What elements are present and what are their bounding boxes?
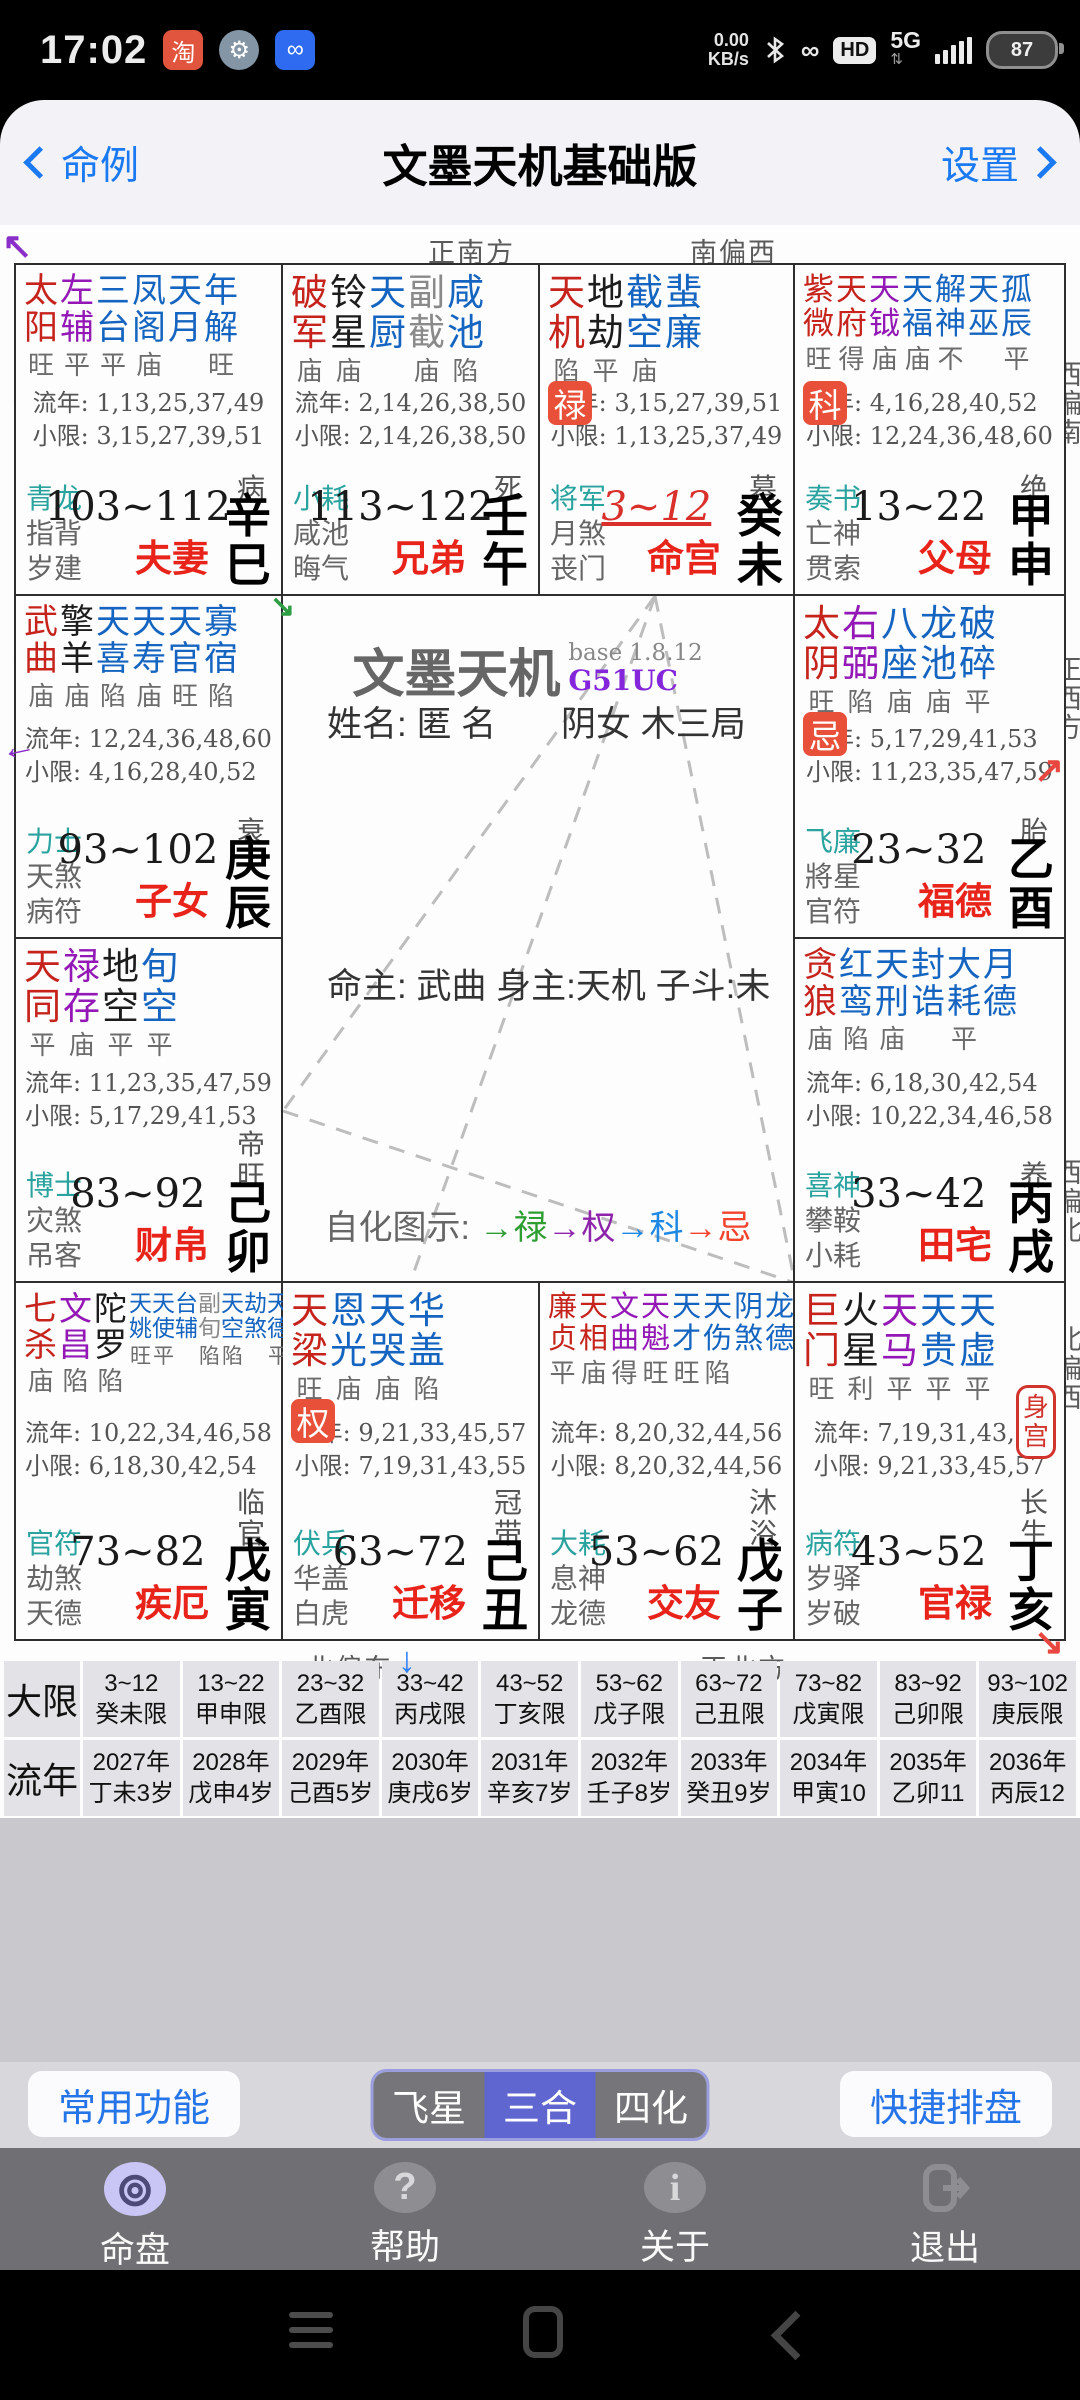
star-char: 使 bbox=[152, 1316, 175, 1341]
decade-age-range[interactable]: 53~62 bbox=[589, 1529, 724, 1575]
sihua-part: 自化图示: bbox=[325, 1209, 480, 1247]
star-华盖: 华盖陷 bbox=[408, 1291, 445, 1403]
liunian-cell[interactable]: 2036年丙辰12 bbox=[979, 1740, 1076, 1816]
liunian-cell[interactable]: 2032年壬子8岁 bbox=[581, 1740, 678, 1816]
palace-name: 官禄 bbox=[918, 1573, 992, 1627]
liunian-ganzhi: 庚戌6岁 bbox=[387, 1778, 472, 1809]
year-limit-lines: 流年: 12,24,36,48,60小限: 4,16,28,40,52 bbox=[25, 723, 272, 789]
stem-char: 戊 bbox=[225, 1537, 271, 1586]
sihua-badge-忌: 忌 bbox=[803, 712, 847, 756]
star-char: 廉 bbox=[665, 313, 702, 353]
palace-交友[interactable]: 廉贞平天相庙文曲得天魁旺天才旺天伤陷阴煞龙德流年: 8,20,32,44,56小… bbox=[540, 1283, 795, 1639]
star-list: 天机陷地劫平截空庙蜚廉 bbox=[548, 273, 793, 385]
star-brightness: 陷 bbox=[97, 1368, 123, 1395]
sihua-part: →权 bbox=[547, 1209, 615, 1247]
decade-age-range[interactable]: 33~42 bbox=[851, 1171, 986, 1217]
star-char: 文 bbox=[59, 1291, 92, 1327]
star-char: 解 bbox=[935, 273, 966, 307]
star-char: 凤 bbox=[132, 273, 166, 310]
palace-name: 福德 bbox=[918, 871, 992, 925]
star-char: 地 bbox=[587, 273, 624, 313]
star-brightness: 平 bbox=[925, 1376, 951, 1403]
star-list: 天梁旺恩光庙天哭庙华盖陷 bbox=[291, 1291, 538, 1403]
star-brightness: 庙 bbox=[64, 683, 90, 710]
star-天贵: 天贵平 bbox=[920, 1291, 957, 1403]
stem-char: 巳 bbox=[225, 541, 271, 590]
daxian-cell[interactable]: 43~52丁亥限 bbox=[481, 1661, 578, 1737]
liunian-year: 2030年 bbox=[391, 1747, 468, 1778]
star-解神: 解神不 bbox=[935, 273, 966, 373]
star-char: 旬 bbox=[141, 947, 178, 987]
star-brightness: 庙 bbox=[581, 1360, 607, 1387]
nav-item-label: 关于 bbox=[640, 2219, 710, 2270]
palace-官禄[interactable]: 巨门旺火星利天马平天贵平天虚平流年: 7,19,31,43,55小限: 9,21… bbox=[795, 1283, 1064, 1639]
star-寡宿: 寡宿陷 bbox=[204, 604, 238, 710]
star-char: 机 bbox=[548, 313, 585, 353]
star-char: 辅 bbox=[60, 310, 94, 347]
palace-name: 兄弟 bbox=[392, 528, 466, 582]
nav-item-退出[interactable]: 退出 bbox=[810, 2148, 1080, 2270]
star-char: 天 bbox=[672, 1291, 701, 1323]
nav-item-label: 退出 bbox=[910, 2220, 980, 2271]
chart-center-info: 文墨天机 base 1.8.12 G51UC 姓名: 匿 名 阴女 木三局 命主… bbox=[283, 596, 795, 1283]
god-月煞: 月煞 bbox=[550, 516, 606, 551]
star-char: 空 bbox=[141, 987, 178, 1027]
star-凤阁: 凤阁庙 bbox=[132, 273, 166, 379]
star-char: 擎 bbox=[60, 604, 94, 641]
liunian-cell[interactable]: 2034年甲寅10 bbox=[780, 1740, 877, 1816]
star-char: 天 bbox=[129, 1291, 152, 1316]
star-brightness: 平 bbox=[29, 1032, 55, 1059]
daxian-ganzhi: 己卯限 bbox=[892, 1699, 964, 1730]
decade-age-range[interactable]: 103~112 bbox=[45, 484, 231, 530]
liunian-cell[interactable]: 2030年庚戌6岁 bbox=[382, 1740, 479, 1816]
stem-branch: 己丑 bbox=[482, 1537, 528, 1635]
palace-name: 命宫 bbox=[647, 528, 721, 582]
stem-char: 戊 bbox=[737, 1537, 783, 1586]
body-palace-char: 宫 bbox=[1023, 1422, 1049, 1451]
stem-branch: 庚辰 bbox=[225, 835, 271, 933]
star-char: 寿 bbox=[132, 641, 166, 678]
stem-branch: 甲申 bbox=[1008, 492, 1054, 590]
star-brightness: 利 bbox=[847, 1376, 873, 1403]
star-char: 右 bbox=[842, 604, 879, 644]
star-天机: 天机陷 bbox=[548, 273, 585, 385]
decade-age-range[interactable]: 113~122 bbox=[307, 484, 493, 530]
star-char: 池 bbox=[920, 644, 957, 684]
star-char: 劫 bbox=[587, 313, 624, 353]
star-char: 封 bbox=[911, 947, 945, 984]
star-char: 哭 bbox=[369, 1331, 406, 1371]
period-tables: 大限 3~12癸未限13~22甲申限23~32乙酉限33~42丙戌限43~52丁… bbox=[4, 1661, 1076, 1816]
star-brightness: 平 bbox=[964, 1376, 990, 1403]
star-char: 三 bbox=[96, 273, 130, 310]
liunian-cell[interactable]: 2029年己酉5岁 bbox=[282, 1740, 379, 1816]
daxian-ganzhi: 庚辰限 bbox=[992, 1699, 1064, 1730]
star-天官: 天官旺 bbox=[168, 604, 202, 710]
star-char: 华 bbox=[408, 1291, 445, 1331]
stem-char: 寅 bbox=[225, 1586, 271, 1635]
liunian-year: 2027年 bbox=[93, 1747, 170, 1778]
stem-char: 丑 bbox=[482, 1586, 528, 1635]
star-太阴: 太阴旺 bbox=[803, 604, 840, 716]
star-char: 火 bbox=[842, 1291, 879, 1331]
palace-兄弟[interactable]: 破军庙铃星庙天厨副截庙咸池陷流年: 2,14,26,38,50小限: 2,14,… bbox=[283, 265, 540, 596]
page-title: 文墨天机基础版 bbox=[382, 130, 697, 195]
daxian-range: 83~92 bbox=[894, 1668, 961, 1699]
daxian-cell[interactable]: 33~42丙戌限 bbox=[382, 1661, 479, 1737]
star-天哭: 天哭庙 bbox=[369, 1291, 406, 1403]
star-brightness: 旺 bbox=[208, 352, 234, 379]
daxian-ganzhi: 癸未限 bbox=[95, 1699, 167, 1730]
nav-item-帮助[interactable]: ?帮助 bbox=[270, 2148, 540, 2270]
star-char: 伤 bbox=[703, 1323, 732, 1355]
star-文昌: 文昌陷 bbox=[59, 1291, 92, 1395]
stem-char: 己 bbox=[225, 1179, 271, 1228]
star-char: 天 bbox=[168, 273, 202, 310]
stem-char: 甲 bbox=[1008, 492, 1054, 541]
body-palace-char: 身 bbox=[1023, 1393, 1049, 1422]
liunian-cell[interactable]: 2035年乙卯11 bbox=[880, 1740, 977, 1816]
android-back-button[interactable] bbox=[771, 2311, 820, 2360]
star-brightness: 平 bbox=[64, 352, 90, 379]
star-brightness: 庙 bbox=[28, 683, 54, 710]
nav-item-命盘[interactable]: ⊚命盘 bbox=[0, 2148, 270, 2270]
star-char: 截 bbox=[408, 313, 445, 353]
daxian-cell[interactable]: 13~22甲申限 bbox=[183, 1661, 280, 1737]
star-brightness: 庙 bbox=[871, 346, 897, 373]
star-char: 虚 bbox=[959, 1331, 996, 1371]
taobao-notification-icon: 淘 bbox=[163, 30, 203, 70]
star-天巫: 天巫 bbox=[968, 273, 999, 373]
star-char: 杀 bbox=[24, 1327, 57, 1363]
stem-char: 申 bbox=[1008, 541, 1054, 590]
daxian-cell[interactable]: 23~32乙酉限 bbox=[282, 1661, 379, 1737]
star-char: 贪 bbox=[803, 947, 837, 984]
palace-name: 交友 bbox=[647, 1573, 721, 1627]
star-天月: 天月 bbox=[168, 273, 202, 379]
star-地空: 地空平 bbox=[102, 947, 139, 1059]
nav-item-label: 帮助 bbox=[370, 2219, 440, 2270]
star-brightness: 得 bbox=[838, 346, 864, 373]
liunian-ganzhi: 戊申4岁 bbox=[188, 1778, 273, 1809]
star-brightness: 平 bbox=[550, 1360, 576, 1387]
liunian-cell[interactable]: 2031年辛亥7岁 bbox=[481, 1740, 578, 1816]
star-char: 天 bbox=[152, 1291, 175, 1316]
bluetooth-icon bbox=[763, 34, 787, 66]
stem-branch: 辛巳 bbox=[225, 492, 271, 590]
decade-age-range[interactable]: 23~32 bbox=[851, 827, 986, 873]
star-brightness: 庙 bbox=[374, 1376, 400, 1403]
liunian-cell[interactable]: 2027年丁未3岁 bbox=[83, 1740, 180, 1816]
palace-name: 迁移 bbox=[392, 1573, 466, 1627]
star-brightness: 平 bbox=[886, 1376, 912, 1403]
star-char: 天 bbox=[920, 1291, 957, 1331]
star-char: 天 bbox=[579, 1291, 608, 1323]
palace-name: 夫妻 bbox=[135, 528, 209, 582]
star-char: 月 bbox=[983, 947, 1017, 984]
star-brightness: 庙 bbox=[413, 358, 439, 385]
settings-button[interactable]: 设置 bbox=[941, 135, 1080, 191]
palace-父母[interactable]: 紫微旺天府得天钺庙天福庙解神不天巫孤辰平科流年: 4,16,28,40,52小限… bbox=[795, 265, 1064, 596]
star-char: 台 bbox=[96, 310, 130, 347]
liunian-year: 2033年 bbox=[690, 1747, 767, 1778]
star-char: 禄 bbox=[63, 947, 100, 987]
star-char: 梁 bbox=[291, 1331, 328, 1371]
star-天姚: 天姚旺 bbox=[129, 1291, 152, 1370]
star-brightness: 陷 bbox=[452, 358, 478, 385]
palace-name: 父母 bbox=[918, 528, 992, 582]
arrow-up-left-icon: ↖ bbox=[2, 225, 32, 267]
segment-三合[interactable]: 三合 bbox=[485, 2072, 596, 2138]
star-八座: 八座庙 bbox=[881, 604, 918, 716]
liunian-ganzhi: 己酉5岁 bbox=[288, 1778, 373, 1809]
star-char: 天 bbox=[836, 273, 867, 307]
star-char: 盖 bbox=[408, 1331, 445, 1371]
star-brightness: 庙 bbox=[335, 358, 361, 385]
palace-疾厄[interactable]: 七杀庙文昌陷陀罗陷天姚旺天使平台辅副旬陷天空陷劫煞天德平流年: 10,22,34… bbox=[16, 1283, 283, 1639]
star-台辅: 台辅 bbox=[175, 1291, 198, 1365]
network-speed: 0.00KB/s bbox=[708, 31, 749, 69]
stem-char: 辛 bbox=[225, 492, 271, 541]
liunian-cell[interactable]: 2028年戊申4岁 bbox=[183, 1740, 280, 1816]
hd-badge: HD bbox=[833, 37, 876, 64]
star-brightness: 庙 bbox=[631, 358, 657, 385]
star-brightness: 陷 bbox=[62, 1368, 88, 1395]
star-brightness: 庙 bbox=[879, 1026, 905, 1053]
star-火星: 火星利 bbox=[842, 1291, 879, 1403]
decade-age-range[interactable]: 3~12 bbox=[601, 484, 711, 530]
star-brightness: 旺 bbox=[28, 352, 54, 379]
back-button[interactable]: 命例 bbox=[0, 135, 139, 191]
stem-char: 子 bbox=[737, 1586, 783, 1635]
sihua-legend: 自化图示: →禄→权→科→忌 bbox=[325, 1200, 752, 1249]
segment-四化[interactable]: 四化 bbox=[596, 2072, 707, 2138]
daxian-row-label: 大限 bbox=[4, 1661, 80, 1737]
star-三台: 三台平 bbox=[96, 273, 130, 379]
star-brightness: 陷 bbox=[705, 1360, 731, 1387]
star-右弼: 右弼陷 bbox=[842, 604, 879, 716]
star-char: 陀 bbox=[94, 1291, 127, 1327]
star-char: 劫 bbox=[244, 1291, 267, 1316]
daxian-cell[interactable]: 93~102庚辰限 bbox=[979, 1661, 1076, 1737]
star-char: 寡 bbox=[204, 604, 238, 641]
star-brightness: 陷 bbox=[847, 689, 873, 716]
nav-item-关于[interactable]: i关于 bbox=[540, 2148, 810, 2270]
star-char: 天 bbox=[875, 947, 909, 984]
star-char: 羊 bbox=[60, 641, 94, 678]
liunian-ages: 流年: 2,14,26,38,50 bbox=[295, 387, 527, 420]
liunian-cell[interactable]: 2033年癸丑9岁 bbox=[681, 1740, 778, 1816]
signal-bars-icon bbox=[935, 37, 972, 64]
star-破军: 破军庙 bbox=[291, 273, 328, 385]
palace-福德[interactable]: 太阴旺右弼陷八座庙龙池庙破碎平忌流年: 5,17,29,41,53小限: 11,… bbox=[795, 596, 1064, 939]
liunian-row-label: 流年 bbox=[4, 1740, 80, 1816]
xiaoxian-ages: 小限: 8,20,32,44,56 bbox=[551, 1450, 783, 1483]
palace-财帛[interactable]: 天同平禄存庙地空平旬空平流年: 11,23,35,47,59小限: 5,17,2… bbox=[16, 939, 283, 1283]
star-char: 天 bbox=[369, 273, 406, 313]
decade-age-range[interactable]: 43~52 bbox=[851, 1529, 986, 1575]
xiaoxian-ages: 小限: 3,15,27,39,51 bbox=[33, 420, 265, 453]
star-char: 咸 bbox=[447, 273, 484, 313]
chart-mode-segmented-control: 飞星三合四化 bbox=[371, 2069, 710, 2141]
star-char: 阴 bbox=[734, 1291, 763, 1323]
star-天空: 天空陷 bbox=[221, 1291, 244, 1370]
star-brightness: 庙 bbox=[136, 352, 162, 379]
background-filler bbox=[0, 1818, 1080, 2062]
star-brightness: 陷 bbox=[199, 1343, 220, 1370]
daxian-range: 13~22 bbox=[197, 1668, 264, 1699]
star-char: 紫 bbox=[803, 273, 834, 307]
star-char: 解 bbox=[204, 310, 238, 347]
star-char: 空 bbox=[221, 1316, 244, 1341]
star-char: 耗 bbox=[947, 984, 981, 1021]
star-list: 贪狼庙红鸾陷天刑庙封诰大耗平月德 bbox=[803, 947, 1064, 1053]
daxian-cell[interactable]: 73~82戊寅限 bbox=[780, 1661, 877, 1737]
star-list: 天同平禄存庙地空平旬空平 bbox=[24, 947, 281, 1059]
star-铃星: 铃星庙 bbox=[330, 273, 367, 385]
star-截空: 截空庙 bbox=[626, 273, 663, 385]
decade-age-range[interactable]: 13~22 bbox=[851, 484, 986, 530]
star-char: 天 bbox=[869, 273, 900, 307]
decade-age-range[interactable]: 73~82 bbox=[70, 1529, 205, 1575]
liunian-ages: 流年: 7,19,31,43,55 bbox=[814, 1417, 1046, 1450]
star-阴煞: 阴煞 bbox=[734, 1291, 763, 1387]
star-天府: 天府得 bbox=[836, 273, 867, 373]
star-char: 天 bbox=[291, 1291, 328, 1331]
star-char: 天 bbox=[548, 273, 585, 313]
liunian-year: 2029年 bbox=[292, 1747, 369, 1778]
daxian-cell[interactable]: 53~62戊子限 bbox=[581, 1661, 678, 1737]
star-char: 空 bbox=[626, 313, 663, 353]
app-root: 17:02 淘 ⚙ ∞ 0.00KB/s ∞ HD 5G⇅ 87 bbox=[0, 0, 1080, 2400]
god-官符: 官符 bbox=[805, 894, 861, 929]
star-天马: 天马平 bbox=[881, 1291, 918, 1403]
quick-chart-button[interactable]: 快捷排盘 bbox=[840, 2071, 1052, 2137]
home-button[interactable] bbox=[523, 2306, 563, 2358]
star-char: 贞 bbox=[548, 1323, 577, 1355]
stem-char: 乙 bbox=[1008, 835, 1054, 884]
star-char: 恩 bbox=[330, 1291, 367, 1331]
stage-char: 冠 bbox=[494, 1487, 522, 1518]
sihua-badge-科: 科 bbox=[803, 381, 847, 425]
star-char: 龙 bbox=[920, 604, 957, 644]
stage-char: 沐 bbox=[749, 1487, 777, 1518]
palace-子女[interactable]: 武曲庙擎羊庙天喜陷天寿庙天官旺寡宿陷流年: 12,24,36,48,60小限: … bbox=[16, 596, 283, 939]
star-旬空: 旬空平 bbox=[141, 947, 178, 1059]
palace-grid: 太阳旺左辅平三台平凤阁庙天月年解旺流年: 1,13,25,37,49小限: 3,… bbox=[14, 263, 1066, 1641]
gender-and-bureau: 阴女 木三局 bbox=[561, 696, 746, 747]
star-char: 文 bbox=[610, 1291, 639, 1323]
decade-age-range[interactable]: 93~102 bbox=[58, 827, 219, 873]
star-文曲: 文曲得 bbox=[610, 1291, 639, 1387]
star-char: 才 bbox=[672, 1323, 701, 1355]
star-brightness: 庙 bbox=[68, 1032, 94, 1059]
daxian-cell[interactable]: 3~12癸未限 bbox=[83, 1661, 180, 1737]
stem-char: 丙 bbox=[1008, 1179, 1054, 1228]
common-functions-button[interactable]: 常用功能 bbox=[28, 2071, 240, 2137]
liunian-ganzhi: 甲寅10 bbox=[791, 1778, 866, 1809]
star-char: 八 bbox=[881, 604, 918, 644]
xiaoxian-ages: 小限: 12,24,36,48,60 bbox=[806, 420, 1053, 453]
stem-branch: 丙戌 bbox=[1008, 1179, 1054, 1277]
daxian-range: 23~32 bbox=[297, 1668, 364, 1699]
star-list: 武曲庙擎羊庙天喜陷天寿庙天官旺寡宿陷 bbox=[24, 604, 281, 710]
stem-char: 己 bbox=[482, 1537, 528, 1586]
star-char: 天 bbox=[24, 947, 61, 987]
gear-notification-icon: ⚙ bbox=[219, 30, 259, 70]
star-char: 地 bbox=[102, 947, 139, 987]
star-紫微: 紫微旺 bbox=[803, 273, 834, 373]
daxian-cell[interactable]: 83~92己卯限 bbox=[880, 1661, 977, 1737]
star-char: 昌 bbox=[59, 1327, 92, 1363]
star-char: 弼 bbox=[842, 644, 879, 684]
decade-age-range[interactable]: 63~72 bbox=[333, 1529, 468, 1575]
star-char: 钺 bbox=[869, 307, 900, 341]
star-天虚: 天虚平 bbox=[959, 1291, 996, 1403]
arrow-down-icon: ↓ bbox=[398, 1639, 416, 1681]
star-char: 神 bbox=[935, 307, 966, 341]
xiaoxian-ages: 小限: 2,14,26,38,50 bbox=[295, 420, 527, 453]
star-char: 刑 bbox=[875, 984, 909, 1021]
liunian-ages: 流年: 1,13,25,37,49 bbox=[33, 387, 265, 420]
star-char: 截 bbox=[626, 273, 663, 313]
xiaoxian-ages: 小限: 10,22,34,46,58 bbox=[806, 1100, 1053, 1133]
star-蜚廉: 蜚廉 bbox=[665, 273, 702, 385]
star-char: 光 bbox=[330, 1331, 367, 1371]
star-char: 存 bbox=[63, 987, 100, 1027]
daxian-range: 73~82 bbox=[795, 1668, 862, 1699]
god-白虎: 白虎 bbox=[293, 1596, 349, 1631]
decade-age-range[interactable]: 83~92 bbox=[70, 1171, 205, 1217]
star-brightness: 庙 bbox=[807, 1026, 833, 1053]
star-咸池: 咸池陷 bbox=[447, 273, 484, 385]
star-天魁: 天魁旺 bbox=[641, 1291, 670, 1387]
palace-田宅[interactable]: 贪狼庙红鸾陷天刑庙封诰大耗平月德流年: 6,18,30,42,54小限: 10,… bbox=[795, 939, 1064, 1283]
xiaoxian-ages: 小限: 11,23,35,47,59 bbox=[806, 756, 1053, 789]
segment-飞星[interactable]: 飞星 bbox=[374, 2072, 485, 2138]
star-char: 月 bbox=[168, 310, 202, 347]
arrow-down-right-icon: ↘ bbox=[270, 589, 295, 624]
god-晦气: 晦气 bbox=[293, 551, 349, 586]
star-brightness: 庙 bbox=[886, 689, 912, 716]
star-红鸾: 红鸾陷 bbox=[839, 947, 873, 1053]
god-龙德: 龙德 bbox=[550, 1596, 606, 1631]
star-char: 左 bbox=[60, 273, 94, 310]
daxian-ganzhi: 丁亥限 bbox=[494, 1699, 566, 1730]
palace-命宫[interactable]: 天机陷地劫平截空庙蜚廉禄流年: 3,15,27,39,51小限: 1,13,25… bbox=[540, 265, 795, 596]
stem-char: 午 bbox=[482, 541, 528, 590]
star-brightness: 庙 bbox=[335, 1376, 361, 1403]
link-status-icon: ∞ bbox=[801, 35, 820, 66]
xiaoxian-ages: 小限: 9,21,33,45,57 bbox=[814, 1450, 1046, 1483]
god-贯索: 贯索 bbox=[805, 551, 861, 586]
title-bar: 命例 文墨天机基础版 设置 bbox=[0, 100, 1080, 225]
star-char: 煞 bbox=[734, 1323, 763, 1355]
recent-apps-button[interactable] bbox=[289, 2312, 333, 2357]
stage-char: 长 bbox=[1020, 1487, 1048, 1518]
daxian-cell[interactable]: 63~72己丑限 bbox=[681, 1661, 778, 1737]
bottom-navigation: ⊚命盘?帮助i关于退出 bbox=[0, 2148, 1080, 2270]
star-brightness: 平 bbox=[153, 1343, 174, 1370]
star-char: 天 bbox=[369, 1291, 406, 1331]
palace-迁移[interactable]: 天梁旺恩光庙天哭庙华盖陷权流年: 9,21,33,45,57小限: 7,19,3… bbox=[283, 1283, 540, 1639]
xiaoxian-ages: 小限: 7,19,31,43,55 bbox=[295, 1450, 527, 1483]
palace-夫妻[interactable]: 太阳旺左辅平三台平凤阁庙天月年解旺流年: 1,13,25,37,49小限: 3,… bbox=[16, 265, 283, 596]
star-月德: 月德 bbox=[983, 947, 1017, 1053]
star-char: 马 bbox=[881, 1331, 918, 1371]
star-char: 天 bbox=[703, 1291, 732, 1323]
